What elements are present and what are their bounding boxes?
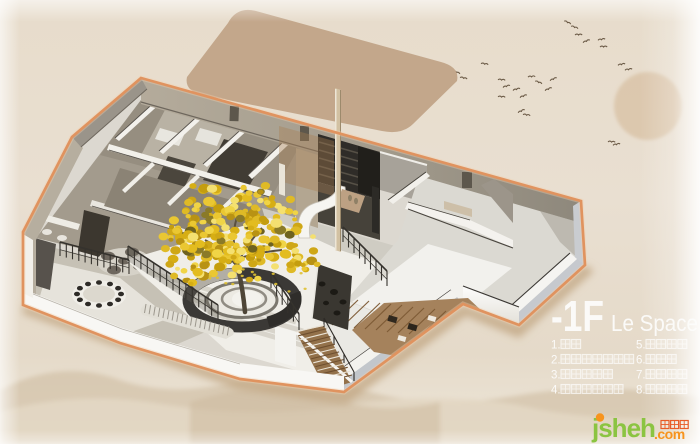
svg-text:6.: 6. <box>636 355 646 367</box>
svg-text:-1F: -1F <box>551 292 604 341</box>
svg-text:5.: 5. <box>636 340 646 352</box>
svg-text:4.: 4. <box>551 385 561 397</box>
svg-text:Le Space: Le Space <box>611 310 698 336</box>
svg-text:2.: 2. <box>551 355 561 367</box>
svg-text:8.: 8. <box>636 385 646 397</box>
svg-text:7.: 7. <box>636 370 646 382</box>
svg-text:1.: 1. <box>551 340 561 352</box>
svg-text:3.: 3. <box>551 370 561 382</box>
